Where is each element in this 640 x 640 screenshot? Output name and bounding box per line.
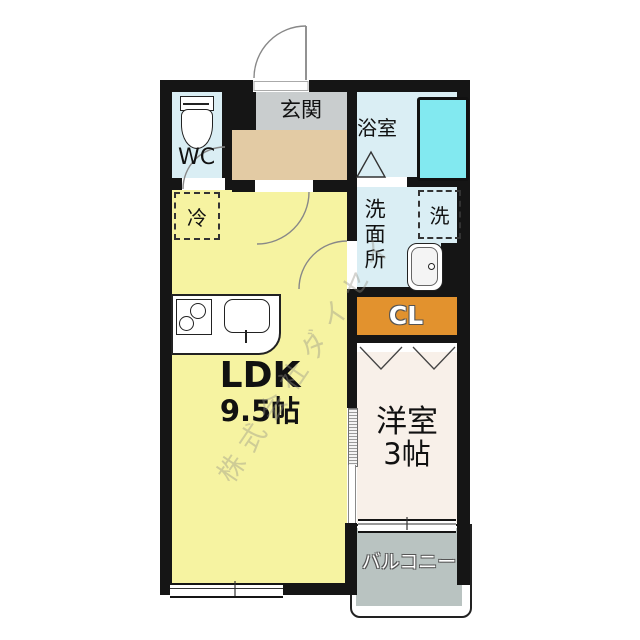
ldk-label: LDK 9.5帖 — [172, 350, 348, 434]
ldk-door-opening — [255, 180, 313, 192]
washroom-label: 洗面所 — [362, 198, 385, 293]
ldk-name: LDK — [220, 356, 301, 396]
laundry-space: 洗 — [418, 190, 461, 239]
stove-burner-1 — [190, 303, 206, 319]
wall-western-left — [347, 343, 357, 408]
floorplan: 冷 洗 WC 玄関 浴室 洗面所 CL LDK 9.5帖 洋室 3帖 バルコニー… — [0, 0, 640, 640]
balcony-label-text: バルコニー — [362, 552, 457, 573]
western-room-name: 洋室 — [376, 405, 438, 439]
front-door-opening — [253, 80, 309, 92]
ldk-window — [170, 583, 283, 598]
bathtub-icon — [417, 97, 469, 181]
wall-below-closet — [347, 335, 470, 343]
bath-label: 浴室 — [357, 117, 397, 139]
washroom-door-opening — [347, 241, 357, 289]
toilet-seat-line — [183, 103, 209, 105]
wall-sink-void — [441, 243, 457, 290]
balcony-window — [358, 519, 456, 533]
entrance-label: 玄関 — [255, 92, 347, 130]
balcony-label: バルコニー — [356, 548, 462, 576]
wc-door-opening — [182, 178, 225, 190]
ldk-size: 9.5帖 — [220, 396, 300, 428]
front-door-swing-arc — [254, 26, 306, 78]
bath-door-opening — [357, 177, 407, 187]
fridge-space: 冷 — [174, 192, 220, 240]
western-room-size: 3帖 — [383, 439, 430, 471]
thin-partition — [348, 465, 356, 523]
closet-label-text: CL — [389, 302, 423, 330]
wall-wc-entrance — [232, 92, 256, 130]
wall-top — [160, 80, 470, 92]
wc-label: WC — [178, 146, 215, 170]
sink-drain-dot — [428, 263, 435, 270]
entrance-label-text: 玄関 — [280, 99, 322, 122]
fridge-label: 冷 — [187, 202, 207, 231]
kitchen-faucet — [245, 330, 247, 343]
closet-track — [357, 343, 457, 352]
laundry-label: 洗 — [430, 200, 450, 229]
kitchen-sink-icon — [224, 299, 270, 333]
wall-wc-right — [222, 92, 232, 190]
closet-label: CL — [355, 297, 457, 335]
western-room-label: 洋室 3帖 — [357, 392, 457, 484]
stove-burner-2 — [179, 316, 194, 331]
